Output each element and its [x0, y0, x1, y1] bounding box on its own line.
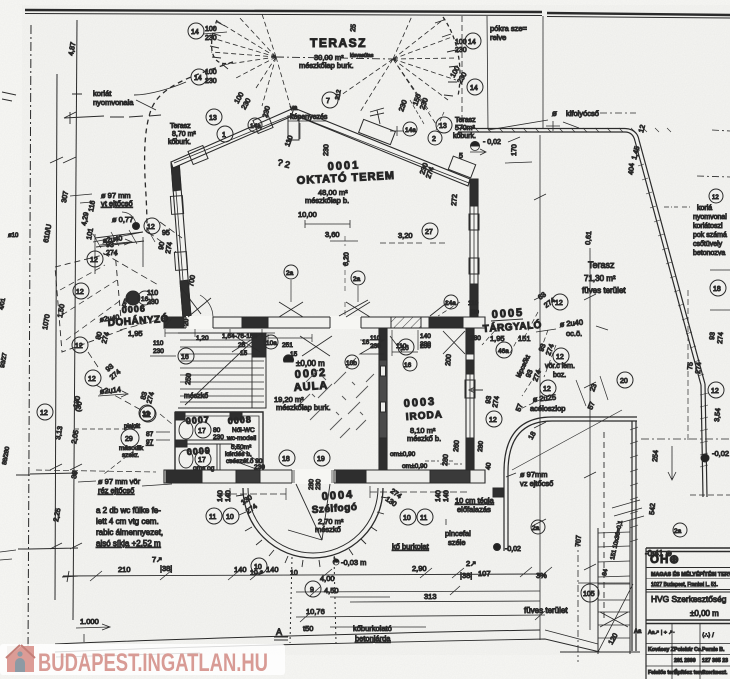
svg-text:274: 274 [695, 362, 703, 374]
svg-text:13: 13 [209, 115, 217, 122]
svg-text:107: 107 [478, 569, 491, 578]
svg-text:kifolyócső: kifolyócső [566, 109, 599, 118]
svg-text:ø 97 mm vör: ø 97 mm vör [98, 477, 141, 486]
svg-text:280: 280 [477, 440, 485, 452]
svg-text:betonozva: betonozva [693, 250, 725, 257]
svg-text:2a: 2a [353, 276, 361, 283]
svg-text:|30: |30 [470, 309, 479, 316]
svg-text:0004: 0004 [321, 489, 354, 503]
svg-text:260: 260 [453, 440, 461, 452]
svg-text:11: 11 [420, 515, 427, 522]
svg-text:1.000: 1.000 [80, 617, 99, 626]
svg-text:nyomvonala: nyomvonala [93, 98, 134, 107]
svg-text:pok számá: pok számá [693, 232, 727, 239]
svg-text:105: 105 [583, 591, 595, 598]
svg-text:3,54: 3,54 [714, 408, 722, 422]
svg-text:20: 20 [183, 318, 190, 326]
svg-text:korlá: korlá [697, 205, 712, 212]
svg-text:110: 110 [147, 290, 158, 297]
svg-text:25: 25 [350, 24, 358, 32]
svg-text:Szerkeszt.: Szerkeszt. [702, 670, 728, 676]
svg-text:va: va [290, 105, 298, 112]
svg-text:csőtüvely: csőtüvely [693, 241, 723, 248]
svg-text:38: 38 [71, 470, 79, 479]
svg-text:A: A [276, 627, 282, 637]
svg-text:10: 10 [226, 514, 234, 521]
svg-text:2↗: 2↗ [466, 559, 476, 568]
svg-text:korlátoszl: korlátoszl [693, 223, 723, 230]
svg-text:11: 11 [209, 514, 216, 521]
svg-text:rabic álmennyezet,: rabic álmennyezet, [96, 528, 163, 537]
svg-text:140: 140 [266, 565, 279, 574]
svg-text:acéloszlop: acéloszlop [530, 404, 565, 413]
svg-text:15: 15 [290, 351, 298, 358]
svg-text:második: második [119, 445, 144, 452]
svg-text:7: 7 [326, 98, 330, 105]
svg-text:14a: 14a [445, 300, 456, 307]
svg-text:ø10: ø10 [8, 233, 19, 239]
svg-text:10,76: 10,76 [306, 607, 325, 616]
svg-text:14: 14 [194, 75, 202, 82]
svg-text:mészkőlap burk.: mészkőlap burk. [299, 61, 354, 70]
svg-text:12: 12 [712, 195, 719, 201]
svg-text:vör.c lem.: vör.c lem. [545, 363, 575, 370]
svg-text:Építész terv.: Építész terv. [674, 668, 705, 676]
svg-text:füves terület: füves terület [524, 606, 568, 615]
svg-text:vz ejtőcső: vz ejtőcső [520, 479, 553, 488]
svg-text:404: 404 [628, 163, 636, 175]
svg-text:mészkő: mészkő [184, 393, 208, 400]
svg-text:0002: 0002 [294, 367, 327, 381]
svg-text:Kovácsy Z.: Kovácsy Z. [648, 647, 676, 653]
svg-text:boz.: boz. [553, 372, 566, 379]
svg-text:Terasz: Terasz [588, 260, 615, 270]
svg-text:251: 251 [282, 342, 293, 349]
svg-text:2: 2 [432, 136, 436, 143]
svg-text:570m²: 570m² [455, 125, 476, 132]
svg-text:betonjárda: betonjárda [355, 634, 391, 643]
svg-text:lett 4 cm vtg cem.: lett 4 cm vtg cem. [96, 517, 159, 526]
svg-text:9: 9 [310, 587, 314, 594]
svg-text:2,90: 2,90 [412, 564, 427, 573]
svg-text:95: 95 [162, 230, 170, 237]
svg-text:korlát: korlát [93, 89, 112, 98]
svg-text:230: 230 [323, 144, 330, 156]
svg-text:ø 97mm: ø 97mm [520, 470, 548, 479]
svg-text:12: 12 [489, 417, 497, 424]
svg-text:18: 18 [282, 456, 290, 463]
svg-text:87: 87 [146, 431, 154, 438]
svg-text:képenyezés: képenyezés [290, 114, 328, 121]
svg-text:140: 140 [217, 490, 224, 502]
svg-text:230: 230 [470, 335, 481, 342]
svg-text:kő burkolat: kő burkolat [392, 542, 430, 551]
svg-text:om±0,90: om±0,90 [390, 451, 416, 458]
svg-text:kőburk.: kőburk. [168, 139, 191, 146]
svg-text:AULA: AULA [293, 380, 328, 394]
svg-text:140: 140 [225, 490, 232, 502]
svg-text:0,61: 0,61 [585, 231, 593, 245]
svg-text:12: 12 [76, 289, 84, 296]
svg-text:12: 12 [143, 412, 151, 419]
svg-text:140: 140 [234, 565, 247, 574]
svg-text:14: 14 [470, 85, 478, 92]
svg-text:8,70 m²: 8,70 m² [172, 131, 196, 138]
svg-text:230: 230 [254, 464, 265, 471]
svg-text:14: 14 [468, 39, 476, 46]
svg-text:27: 27 [425, 229, 433, 236]
svg-text:230: 230 [315, 479, 322, 490]
svg-text:29: 29 [125, 436, 133, 443]
svg-text:16: 16 [181, 354, 189, 361]
svg-text:274: 274 [717, 332, 725, 344]
svg-text:12: 12 [711, 388, 719, 395]
svg-text:230: 230 [205, 35, 217, 42]
svg-text:oms og: oms og [193, 465, 215, 472]
svg-text:4,00: 4,00 [320, 574, 335, 583]
svg-text:relve: relve [490, 33, 506, 42]
svg-text:230: 230 [455, 47, 467, 54]
svg-text:1,95: 1,95 [128, 329, 143, 338]
svg-text:0003: 0003 [403, 396, 436, 410]
svg-text:250: 250 [185, 373, 193, 385]
svg-text:16: 16 [404, 362, 412, 369]
svg-text:12: 12 [555, 300, 563, 307]
svg-text:71,30 m²: 71,30 m² [584, 274, 616, 283]
svg-text:6,20: 6,20 [343, 252, 350, 266]
svg-text:|38|: |38| [460, 571, 472, 580]
svg-text:201 2890: 201 2890 [674, 658, 696, 664]
svg-text:127 305 23: 127 305 23 [702, 658, 728, 664]
svg-text:mészkőlap b.: mészkőlap b. [305, 196, 349, 205]
svg-text:110: 110 [153, 340, 164, 347]
svg-text:3,60: 3,60 [325, 230, 340, 239]
svg-text:t50: t50 [303, 624, 313, 633]
svg-text:230: 230 [420, 343, 431, 350]
svg-text:-0,02: -0,02 [505, 546, 521, 553]
svg-text:⟨∴⟩ /: ⟨∴⟩ / [702, 632, 714, 639]
svg-text:170: 170 [511, 144, 518, 156]
svg-text:pincefal: pincefal [445, 529, 471, 538]
svg-text:110: 110 [468, 300, 479, 307]
svg-text:14a: 14a [405, 127, 416, 134]
svg-text:10b: 10b [346, 360, 357, 367]
svg-text:nyomvonal: nyomvonal [693, 214, 727, 221]
svg-text:10 cm tégla: 10 cm tégla [455, 496, 495, 505]
svg-text:MAGAS ÉS MÉLYÉPÍTÉSI TERVEZ: MAGAS ÉS MÉLYÉPÍTÉSI TERVEZ [651, 570, 730, 578]
svg-text:alsó síkja +2,52 m: alsó síkja +2,52 m [96, 539, 161, 548]
svg-text:10: 10 [254, 564, 262, 571]
svg-text:13: 13 [439, 123, 447, 130]
svg-text:20: 20 [620, 378, 628, 385]
svg-text:Polskár Cs.: Polskár Cs. [674, 647, 703, 653]
svg-text:ø: ø [552, 109, 557, 118]
svg-text:1,20: 1,20 [196, 335, 209, 342]
svg-text:16: 16 [141, 296, 149, 303]
svg-text:100: 100 [205, 26, 217, 33]
svg-text:200: 200 [445, 354, 453, 366]
svg-text:75: 75 [687, 362, 695, 370]
svg-text:10: 10 [290, 570, 298, 577]
svg-text:19: 19 [317, 456, 325, 463]
svg-text:om±0,90: om±0,90 [402, 463, 428, 470]
svg-text:110: 110 [396, 343, 407, 350]
svg-text:10,00: 10,00 [298, 210, 317, 219]
svg-text:1: 1 [222, 132, 226, 139]
svg-text:kőburk.: kőburk. [453, 133, 476, 140]
svg-text:Női-WC: Női-WC [232, 427, 255, 434]
svg-text:707: 707 [575, 535, 583, 547]
svg-text:ø 0,77: ø 0,77 [112, 215, 133, 224]
svg-text:7↗: 7↗ [152, 555, 162, 564]
svg-text:füves terület: füves terület [582, 286, 626, 295]
svg-text:40: 40 [485, 462, 493, 470]
svg-text:2a: 2a [286, 270, 294, 277]
svg-text:mészkőlap burk.: mészkőlap burk. [276, 403, 331, 412]
svg-text:140: 140 [420, 333, 431, 340]
svg-text:10: 10 [403, 515, 411, 522]
svg-text:14: 14 [191, 29, 199, 36]
svg-text:-0,03 m: -0,03 m [341, 558, 366, 567]
svg-text:15: 15 [240, 350, 248, 357]
svg-text:HVG Szerkesztőség: HVG Szerkesztőség [651, 594, 727, 604]
svg-text:12: 12 [556, 354, 564, 361]
svg-text:vt ejtőcső: vt ejtőcső [101, 199, 133, 208]
svg-text:ÖH⊕: ÖH⊕ [650, 553, 680, 566]
svg-text:12: 12 [88, 376, 96, 383]
svg-text:230: 230 [370, 343, 381, 350]
svg-text:93: 93 [709, 332, 717, 340]
svg-text:2a: 2a [532, 525, 540, 532]
svg-text:230: 230 [147, 299, 159, 306]
svg-text:±0,00 m: ±0,00 m [690, 609, 719, 618]
svg-text:230: 230 [153, 348, 164, 355]
svg-text:Terasz: Terasz [455, 117, 476, 124]
svg-text:mészkő b.: mészkő b. [407, 434, 441, 443]
svg-text:210: 210 [118, 565, 131, 574]
svg-text:0008: 0008 [227, 414, 252, 426]
svg-text:TERASZ: TERASZ [310, 36, 367, 50]
svg-text:3,20: 3,20 [398, 231, 413, 240]
svg-text:Aa: Aa [634, 629, 642, 635]
svg-text:réz ejtőcső: réz ejtőcső [98, 486, 134, 495]
svg-text:17: 17 [198, 457, 206, 464]
svg-text:542: 542 [649, 503, 657, 515]
svg-text:254: 254 [652, 450, 660, 462]
svg-text:Aa↗ | ÷ ↗·: Aa↗ | ÷ ↗· [648, 630, 675, 636]
svg-text:Pernis B.: Pernis B. [702, 647, 725, 653]
svg-text:12: 12 [40, 410, 48, 417]
svg-text:12: 12 [75, 343, 83, 350]
svg-text:széle: széle [448, 538, 466, 547]
svg-text:272: 272 [451, 194, 459, 206]
svg-text:wc-modell: wc-modell [226, 435, 257, 442]
svg-text:4,50: 4,50 [324, 586, 339, 595]
svg-text:313: 313 [424, 592, 437, 601]
svg-text:100: 100 [455, 39, 467, 46]
svg-text:előfalazás: előfalazás [457, 505, 491, 514]
svg-text:|38|: |38| [160, 564, 172, 573]
svg-text:14a: 14a [250, 123, 261, 130]
svg-text:12: 12 [90, 257, 98, 264]
svg-text:46a: 46a [498, 348, 509, 355]
svg-text:pókra sze=: pókra sze= [490, 24, 528, 33]
svg-text:12: 12 [543, 386, 551, 393]
svg-text:80: 80 [213, 427, 221, 434]
svg-text:3%: 3% [536, 571, 547, 580]
svg-text:230: 230 [213, 434, 224, 441]
svg-text:18: 18 [713, 286, 721, 293]
svg-text:Terasz: Terasz [170, 123, 191, 130]
svg-text:16: 16 [362, 339, 370, 346]
svg-text:- 0,02: - 0,02 [483, 139, 501, 146]
svg-text:2a: 2a [674, 528, 682, 535]
svg-text:100: 100 [205, 69, 217, 76]
svg-text:110: 110 [370, 335, 381, 342]
svg-text:a 2 db wc fülke fe-: a 2 db wc fülke fe- [96, 506, 161, 515]
svg-text:-0,02: -0,02 [712, 449, 729, 458]
svg-text:oc.ö.: oc.ö. [566, 329, 582, 338]
svg-text:kőburkolató: kőburkolató [353, 624, 392, 633]
svg-text:17: 17 [198, 428, 206, 435]
svg-text:BUDAPEST.INGATLAN.HU: BUDAPEST.INGATLAN.HU [38, 649, 268, 677]
svg-text:230: 230 [205, 78, 217, 85]
svg-text:97: 97 [146, 439, 154, 446]
